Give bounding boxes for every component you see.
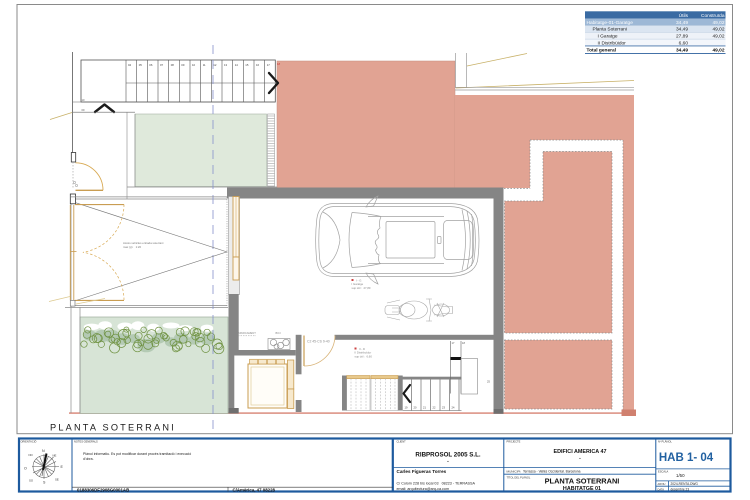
svg-text:21: 21: [423, 406, 426, 410]
svg-text:18: 18: [462, 341, 465, 345]
svg-text:19: 19: [405, 406, 408, 410]
svg-text:DATA: DATA: [658, 487, 665, 491]
svg-text:25: 25: [487, 380, 490, 384]
svg-text:49,02: 49,02: [712, 34, 724, 40]
svg-text:CLIENT: CLIENT: [397, 440, 407, 444]
svg-text:Construïda: Construïda: [701, 13, 725, 19]
svg-text:desembre 23: desembre 23: [671, 487, 690, 491]
svg-text:34,49: 34,49: [676, 20, 688, 26]
svg-text:I Garatge: I Garatge: [598, 34, 618, 40]
svg-text:Plànol informatiu. Es pot modi: Plànol informatiu. Es pot modificar dura…: [83, 452, 191, 456]
svg-text:17: 17: [267, 63, 271, 67]
svg-text:RIBPROSOL 2005 S.L.: RIBPROSOL 2005 S.L.: [415, 452, 481, 459]
svg-text:email: arquitectura@arq-ca.com: email: arquitectura@arq-ca.com: [397, 487, 450, 491]
svg-text:49,02: 49,02: [712, 20, 724, 26]
svg-text:Total general: Total general: [587, 47, 617, 53]
svg-text:2024-RENTA.DWG: 2024-RENTA.DWG: [671, 482, 699, 486]
svg-text:Terrassa - Vallès Occidental.: Terrassa - Vallès Occidental. Barcelona: [523, 469, 581, 473]
svg-text:07: 07: [160, 63, 164, 67]
svg-text:34,49: 34,49: [676, 27, 688, 33]
svg-text:C/ Colom 228 bis local 03 08: C/ Colom 228 bis local 03 08223 - TERRAS…: [397, 481, 476, 485]
svg-text:TÍTOL DEL PLÀNOL: TÍTOL DEL PLÀNOL: [507, 476, 531, 480]
svg-text:22: 22: [433, 406, 436, 410]
svg-text:Planta Soterrani: Planta Soterrani: [593, 27, 627, 33]
svg-text:BICI: BICI: [276, 331, 281, 335]
svg-text:EDIFICI AMERICA 47: EDIFICI AMERICA 47: [554, 449, 607, 455]
svg-text:PROJECTE: PROJECTE: [507, 440, 521, 444]
svg-text:C2 45-CS 9-40: C2 45-CS 9-40: [307, 340, 330, 344]
svg-text:27,89: 27,89: [676, 34, 688, 40]
svg-text:NE: NE: [53, 454, 57, 458]
svg-text:ESCALA: ESCALA: [658, 469, 669, 473]
svg-text:sup útil : 6,60: sup útil : 6,60: [355, 354, 373, 358]
svg-text:sup útil : 27,89: sup útil : 27,89: [352, 286, 371, 290]
svg-text:HABITATGE 01: HABITATGE 01: [563, 486, 601, 492]
svg-text:max (p): 1:20: max (p): 1:20: [123, 245, 141, 249]
svg-text:05: 05: [139, 63, 143, 67]
svg-text:C/Amèrica, 47 08228: C/Amèrica, 47 08228: [233, 487, 276, 492]
svg-text:APARCAMENT: APARCAMENT: [238, 331, 256, 335]
svg-text:09: 09: [181, 63, 185, 67]
svg-text:49,02: 49,02: [712, 27, 724, 33]
svg-text:13: 13: [224, 63, 228, 67]
svg-text:0188306DF2908G0001AB: 0188306DF2908G0001AB: [77, 487, 129, 492]
svg-text:24: 24: [452, 406, 455, 410]
svg-text:O: O: [24, 467, 27, 471]
svg-text:14: 14: [235, 63, 239, 67]
svg-text:16: 16: [256, 63, 260, 67]
svg-text:17: 17: [452, 341, 455, 345]
svg-text:PLANTA SOTERRANI: PLANTA SOTERRANI: [545, 477, 620, 486]
svg-text:d'obra.: d'obra.: [83, 457, 94, 461]
svg-text:NOTES GENERALS: NOTES GENERALS: [74, 440, 98, 444]
svg-text:MUNICIPI:: MUNICIPI:: [507, 469, 522, 473]
svg-text:20: 20: [414, 406, 417, 410]
svg-text:15: 15: [245, 63, 249, 67]
svg-text:18: 18: [277, 62, 281, 66]
svg-text:Útils: Útils: [679, 12, 689, 19]
svg-text:06: 06: [149, 63, 153, 67]
svg-text:6,60: 6,60: [679, 40, 689, 46]
svg-text:1/50: 1/50: [676, 473, 685, 478]
svg-text:ARXIU: ARXIU: [658, 482, 666, 486]
svg-text:09: 09: [82, 108, 85, 112]
svg-text:PLANTA SOTERRANI: PLANTA SOTERRANI: [50, 422, 176, 432]
svg-text:II Distribüidor: II Distribüidor: [598, 40, 627, 46]
svg-text:08: 08: [171, 63, 175, 67]
svg-text:SE: SE: [55, 478, 59, 482]
svg-text:Nº PLÀNOL: Nº PLÀNOL: [658, 440, 672, 444]
svg-text:34,49: 34,49: [676, 47, 688, 53]
svg-text:12: 12: [213, 63, 217, 67]
svg-text:04: 04: [128, 63, 132, 67]
svg-text:23: 23: [442, 406, 445, 410]
svg-text:N: N: [42, 449, 45, 453]
svg-text:Habitatge-01-Garatge: Habitatge-01-Garatge: [587, 20, 634, 26]
svg-text:Carles Figueras Torres: Carles Figueras Torres: [397, 469, 447, 474]
svg-text:49,02: 49,02: [712, 47, 724, 53]
svg-text:HAB 1- 04: HAB 1- 04: [659, 452, 714, 464]
svg-text:11: 11: [203, 63, 206, 67]
svg-text:10: 10: [192, 63, 196, 67]
